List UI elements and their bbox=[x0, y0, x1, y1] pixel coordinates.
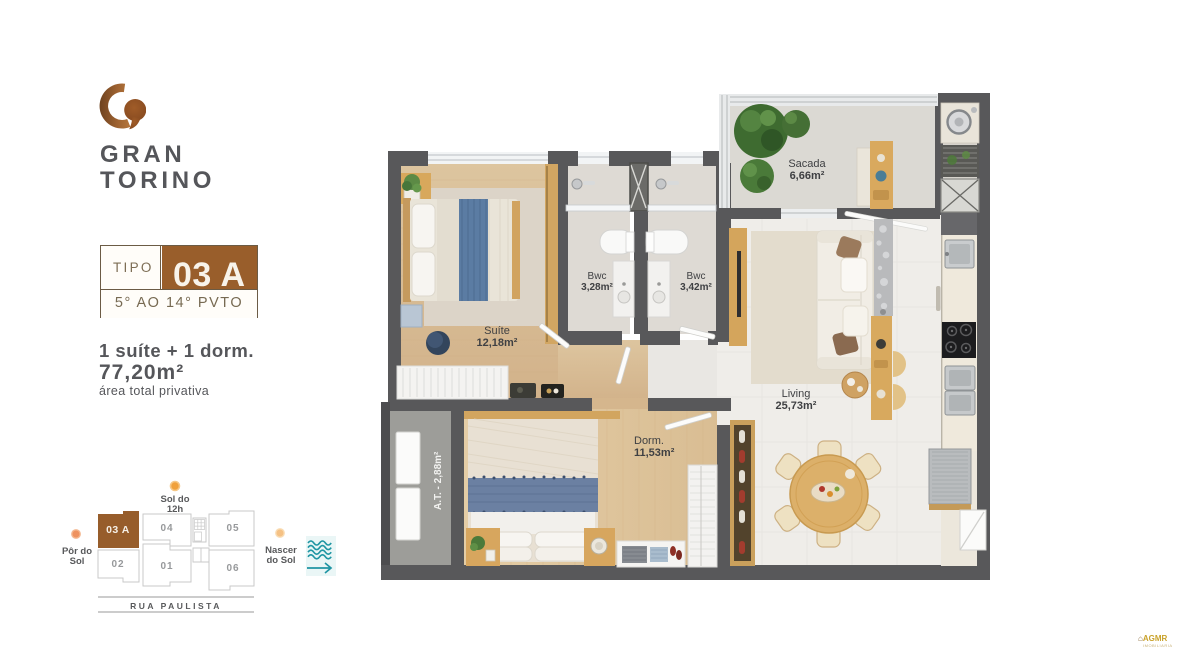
svg-text:02: 02 bbox=[111, 559, 124, 570]
svg-text:Bwc: Bwc bbox=[687, 271, 706, 282]
svg-text:Sol: Sol bbox=[70, 556, 85, 567]
svg-text:12h: 12h bbox=[167, 504, 184, 515]
svg-text:RUA PAULISTA: RUA PAULISTA bbox=[130, 601, 222, 611]
svg-text:3,28m²: 3,28m² bbox=[581, 282, 613, 293]
svg-text:Bwc: Bwc bbox=[588, 271, 607, 282]
svg-text:Dorm.: Dorm. bbox=[634, 435, 664, 447]
svg-text:A.T. - 2,88m²: A.T. - 2,88m² bbox=[433, 451, 444, 510]
svg-text:do Sol: do Sol bbox=[266, 555, 295, 566]
svg-text:6,66m²: 6,66m² bbox=[790, 170, 825, 182]
svg-text:04: 04 bbox=[160, 523, 173, 534]
svg-text:03 A: 03 A bbox=[106, 524, 130, 536]
svg-text:12,18m²: 12,18m² bbox=[477, 337, 518, 349]
svg-text:06: 06 bbox=[226, 563, 239, 574]
svg-text:Sacada: Sacada bbox=[788, 158, 826, 170]
svg-text:Suíte: Suíte bbox=[484, 325, 510, 337]
svg-text:11,53m²: 11,53m² bbox=[634, 447, 675, 459]
svg-text:01: 01 bbox=[160, 561, 173, 572]
svg-text:25,73m²: 25,73m² bbox=[776, 400, 817, 412]
svg-text:05: 05 bbox=[226, 523, 239, 534]
svg-text:3,42m²: 3,42m² bbox=[680, 282, 712, 293]
svg-text:Living: Living bbox=[782, 388, 811, 400]
